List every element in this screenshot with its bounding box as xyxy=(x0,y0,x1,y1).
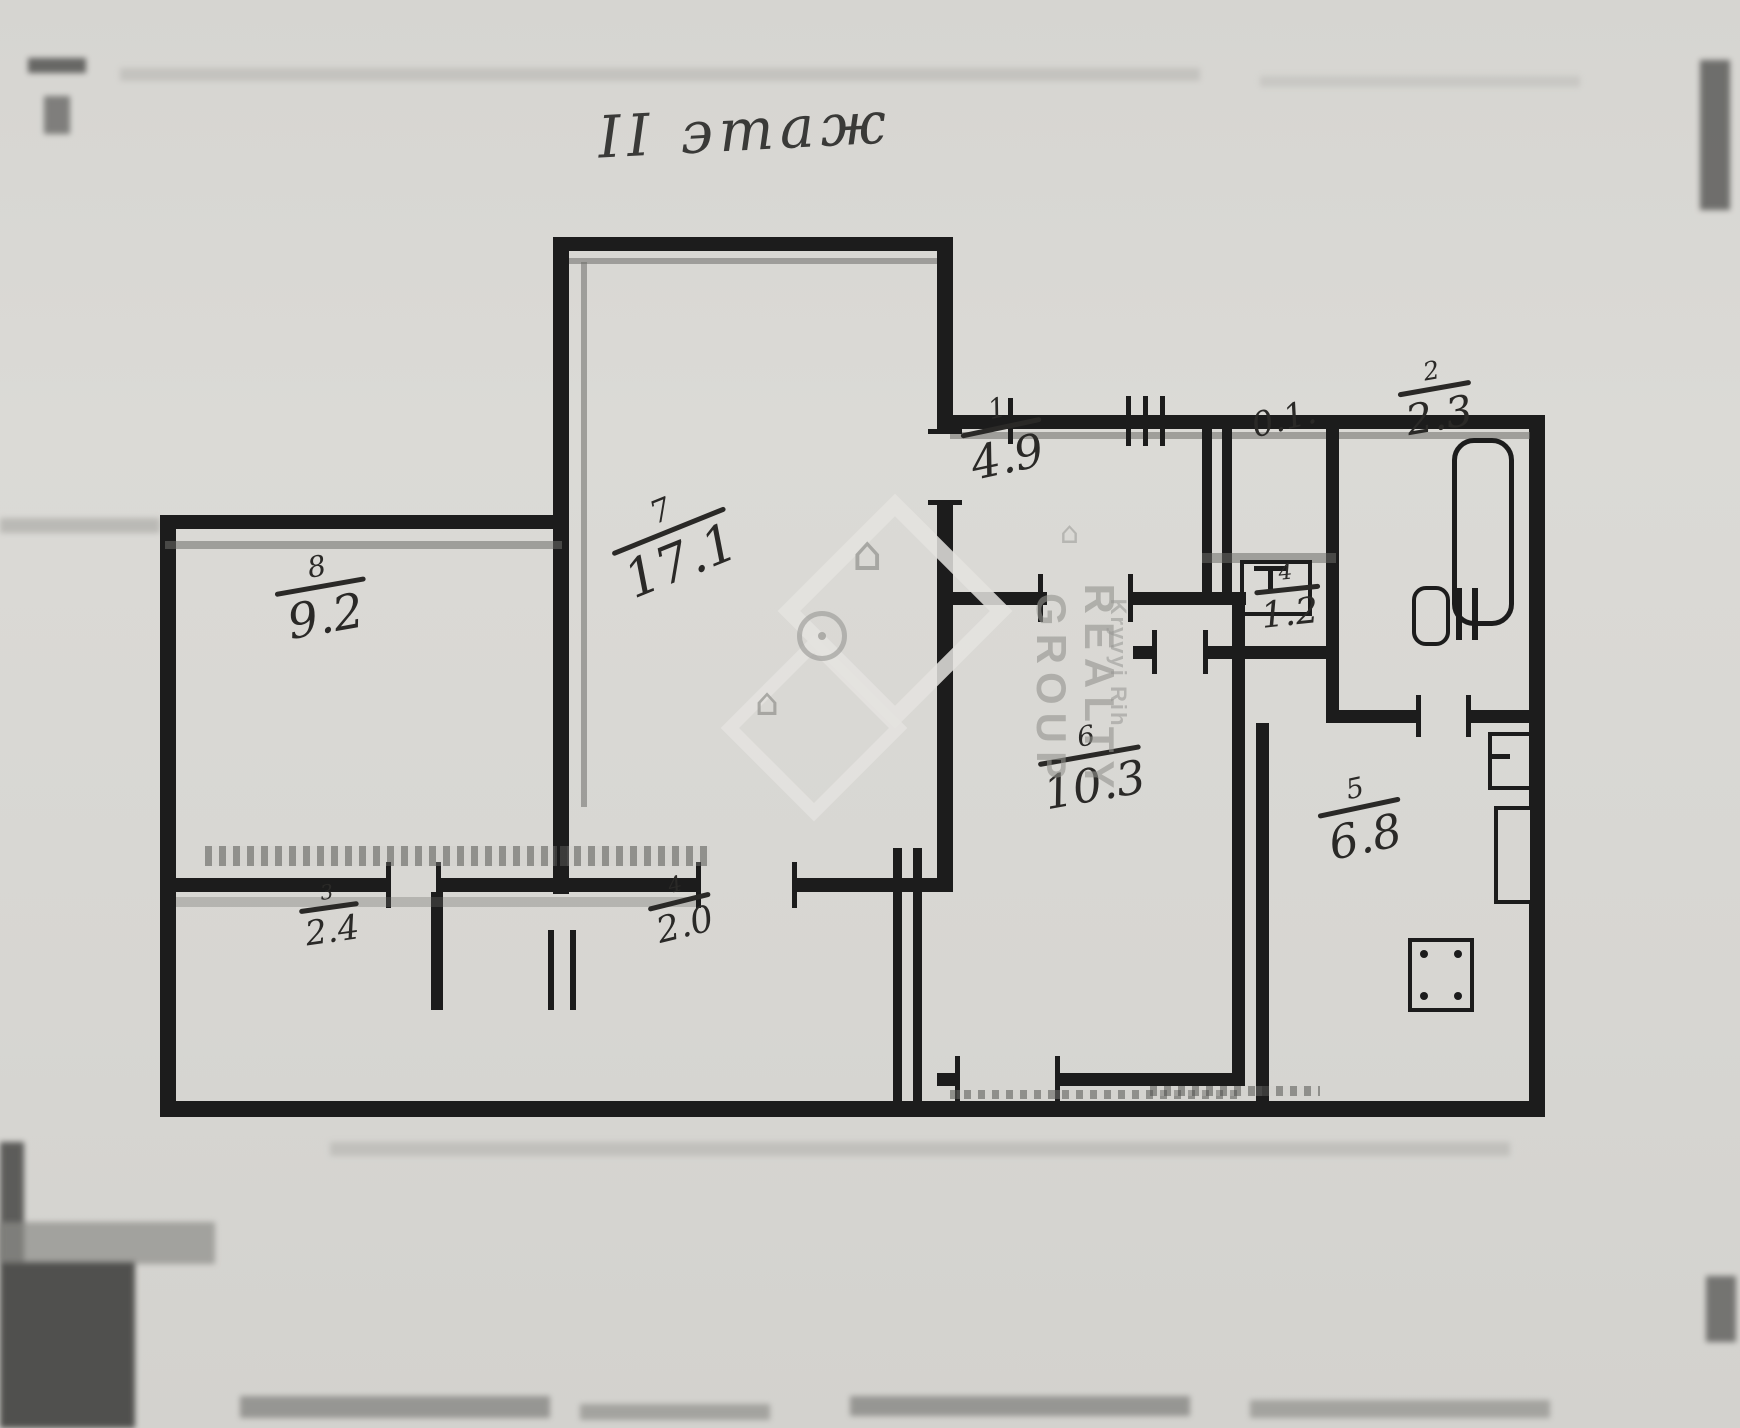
watermark-city-text: Kryvyi Rih xyxy=(1105,563,1131,763)
scan-smudge xyxy=(240,1396,550,1418)
scan-smudge xyxy=(1250,1400,1550,1418)
scan-smudge xyxy=(0,1222,215,1264)
room-label: 8 9.2 xyxy=(255,542,389,650)
scan-smudge xyxy=(330,1142,1510,1156)
vent-duct xyxy=(1494,806,1534,904)
wall xyxy=(893,848,902,1101)
wall xyxy=(1222,415,1232,599)
wall xyxy=(1468,710,1545,723)
watermark-circle-dot-icon xyxy=(818,632,826,640)
wall xyxy=(160,515,176,1115)
stove-burner xyxy=(1454,950,1462,958)
room-area: 2.4 xyxy=(288,909,376,954)
hatch-band xyxy=(205,846,557,866)
scan-smudge xyxy=(0,1262,135,1428)
scan-smudge xyxy=(1706,1276,1736,1342)
wall xyxy=(913,848,922,1101)
door-jamb-tick xyxy=(1416,695,1421,737)
scan-smudge xyxy=(1700,60,1730,210)
door-jamb-tick xyxy=(570,930,576,1010)
wall xyxy=(160,1101,1545,1117)
wall xyxy=(569,258,937,264)
door-jamb-tick xyxy=(928,500,962,505)
room-label: 4 1.2 xyxy=(1239,557,1338,636)
wall xyxy=(937,237,953,429)
scan-smudge xyxy=(580,1404,770,1420)
room-area: 1.2 xyxy=(1242,591,1337,636)
stove-burner xyxy=(1420,950,1428,958)
door-jamb-tick xyxy=(1203,630,1208,674)
room-label: 2 2.3 xyxy=(1380,350,1492,445)
scan-smudge xyxy=(0,518,160,533)
door-jamb-tick xyxy=(548,930,554,1010)
wall xyxy=(553,237,953,251)
scan-smudge xyxy=(120,68,1200,81)
watermark-house-icon: ⌂ xyxy=(852,526,882,582)
scan-smudge xyxy=(28,58,86,73)
room-label: 7 17.1 xyxy=(586,469,761,613)
room-label: 1 4.9 xyxy=(940,384,1065,491)
vent-shaft-tick xyxy=(1160,396,1165,446)
hatch-band xyxy=(176,897,696,907)
sink-icon xyxy=(1488,754,1510,759)
stove-icon xyxy=(1408,938,1474,1012)
wall xyxy=(160,515,564,529)
watermark-circle-dot-icon xyxy=(797,611,847,661)
floor-plan-page: II этаж xyxy=(0,0,1740,1428)
vent-shaft-tick xyxy=(1126,396,1131,446)
floor-title: II этаж xyxy=(553,86,936,174)
vent-shaft-tick xyxy=(1143,396,1148,446)
watermark-house-icon: ⌂ xyxy=(755,680,779,724)
room-label: 5 6.8 xyxy=(1298,764,1423,871)
stove-burner xyxy=(1420,992,1428,1000)
wall xyxy=(431,892,443,1010)
door-jamb-tick xyxy=(1152,630,1157,674)
room-label: 3 2.4 xyxy=(284,876,376,953)
hatch-band xyxy=(560,846,710,866)
scan-smudge xyxy=(1260,76,1580,87)
wall xyxy=(794,878,946,892)
door-jamb-tick xyxy=(792,862,797,908)
wall xyxy=(1326,710,1418,723)
door-jamb-tick xyxy=(1466,695,1471,737)
sink-icon xyxy=(1488,732,1538,790)
scan-smudge xyxy=(850,1396,1190,1416)
toilet-icon xyxy=(1456,588,1462,640)
wall xyxy=(1232,592,1245,1086)
wall xyxy=(1057,1073,1245,1086)
toilet-icon xyxy=(1472,588,1478,640)
wall xyxy=(1205,646,1338,659)
scan-smudge xyxy=(44,96,70,134)
wall xyxy=(581,262,587,807)
wall xyxy=(1130,592,1246,605)
wall xyxy=(1202,415,1212,599)
stove-burner xyxy=(1454,992,1462,1000)
hatch-band xyxy=(1150,1086,1320,1096)
wall xyxy=(1256,723,1269,1115)
toilet-icon xyxy=(1412,586,1450,646)
wall xyxy=(553,237,569,894)
